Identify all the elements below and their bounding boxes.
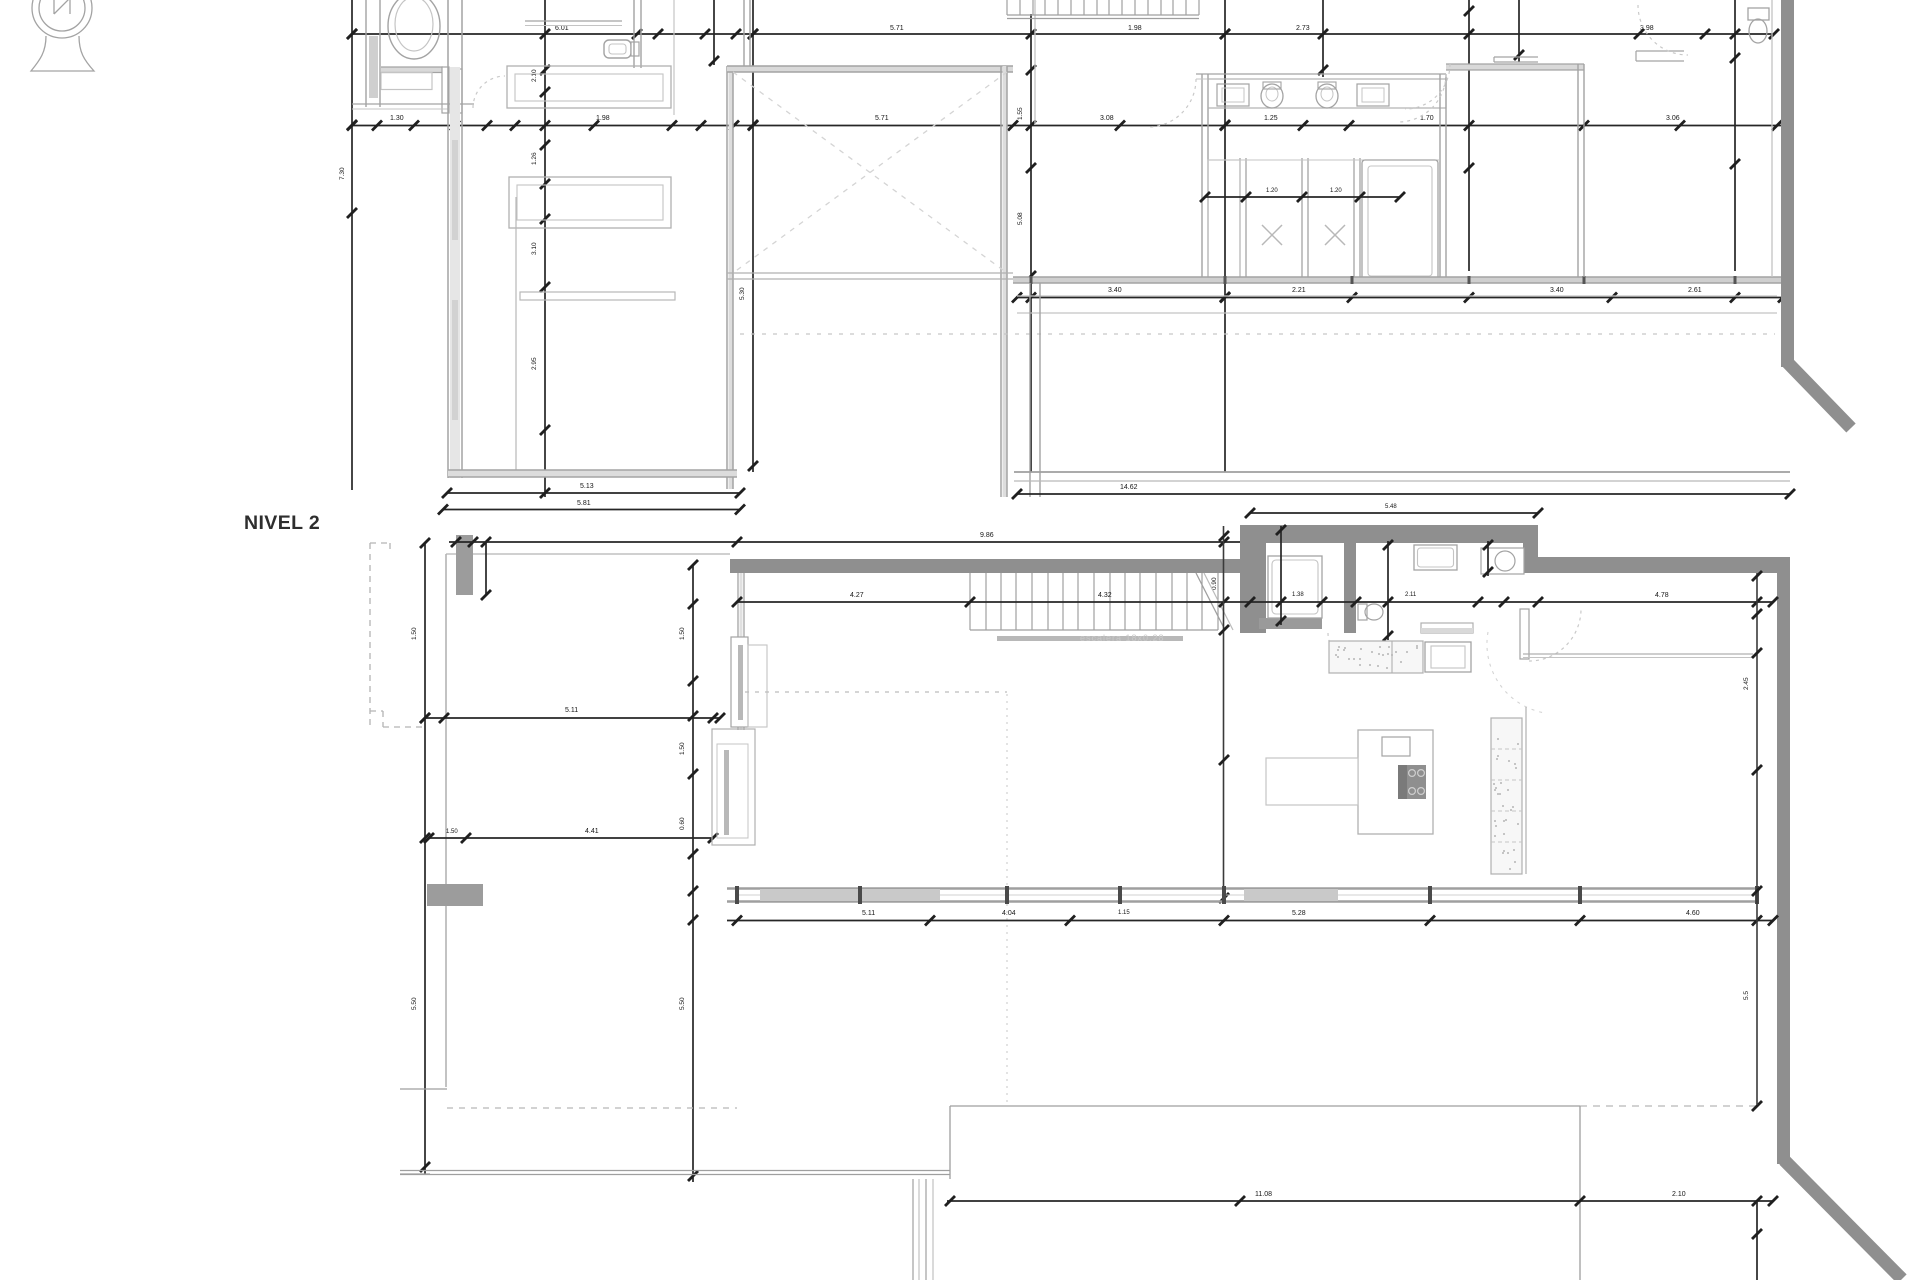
svg-text:1.38: 1.38 [1292, 592, 1304, 598]
svg-text:2.10: 2.10 [1672, 1191, 1686, 1198]
svg-text:5.13: 5.13 [580, 483, 594, 490]
svg-text:1.98: 1.98 [596, 115, 610, 122]
svg-text:3.10: 3.10 [531, 242, 538, 255]
svg-text:5.71: 5.71 [890, 25, 904, 32]
svg-text:4.04: 4.04 [1002, 910, 1016, 917]
svg-text:1.20: 1.20 [1330, 188, 1342, 194]
svg-text:1.15: 1.15 [1118, 910, 1130, 916]
svg-text:7.30: 7.30 [339, 167, 346, 180]
svg-text:2.95: 2.95 [531, 357, 538, 370]
svg-text:2.21: 2.21 [1292, 287, 1306, 294]
svg-text:4.27: 4.27 [850, 592, 864, 599]
svg-text:5.5: 5.5 [1743, 991, 1750, 1000]
svg-text:4.78: 4.78 [1655, 592, 1669, 599]
svg-text:9.86: 9.86 [980, 532, 994, 539]
svg-text:14.62: 14.62 [1120, 484, 1138, 491]
svg-text:1.20: 1.20 [1266, 188, 1278, 194]
svg-text:1.55: 1.55 [1017, 107, 1024, 120]
svg-text:5.28: 5.28 [1292, 910, 1306, 917]
svg-text:NIVEL 2: NIVEL 2 [244, 512, 320, 534]
svg-text:5.08: 5.08 [1017, 212, 1024, 225]
svg-text:5.11: 5.11 [862, 910, 875, 917]
svg-text:2.73: 2.73 [1296, 25, 1310, 32]
svg-text:5.81: 5.81 [577, 500, 591, 507]
svg-text:5.11: 5.11 [565, 707, 578, 714]
svg-text:1.98: 1.98 [1128, 25, 1142, 32]
svg-text:4.32: 4.32 [1098, 592, 1112, 599]
svg-text:4.41: 4.41 [585, 828, 599, 835]
svg-text:1.50: 1.50 [679, 627, 686, 640]
svg-text:3.40: 3.40 [1108, 287, 1122, 294]
svg-text:1.50: 1.50 [446, 829, 458, 835]
svg-text:5.30: 5.30 [739, 287, 746, 300]
svg-text:2.10: 2.10 [531, 69, 538, 82]
svg-text:5.71: 5.71 [875, 115, 889, 122]
svg-text:1.50: 1.50 [411, 627, 418, 640]
svg-text:1.25: 1.25 [1264, 115, 1278, 122]
svg-text:1.50: 1.50 [679, 742, 686, 755]
svg-text:5.50: 5.50 [679, 997, 686, 1010]
svg-text:3.40: 3.40 [1550, 287, 1564, 294]
svg-text:0.60: 0.60 [679, 817, 686, 830]
svg-text:3.08: 3.08 [1100, 115, 1114, 122]
svg-text:5.48: 5.48 [1385, 504, 1397, 510]
svg-text:5.50: 5.50 [411, 997, 418, 1010]
svg-text:3.06: 3.06 [1666, 115, 1680, 122]
svg-text:1.26: 1.26 [531, 152, 538, 165]
svg-text:11.08: 11.08 [1255, 1191, 1272, 1198]
svg-text:2.45: 2.45 [1743, 677, 1750, 690]
svg-text:1.30: 1.30 [390, 115, 404, 122]
svg-text:4.60: 4.60 [1686, 910, 1700, 917]
svg-text:2.61: 2.61 [1688, 287, 1702, 294]
svg-text:escalera 18x0.28: escalera 18x0.28 [1080, 633, 1165, 643]
svg-text:2.11: 2.11 [1405, 592, 1417, 598]
